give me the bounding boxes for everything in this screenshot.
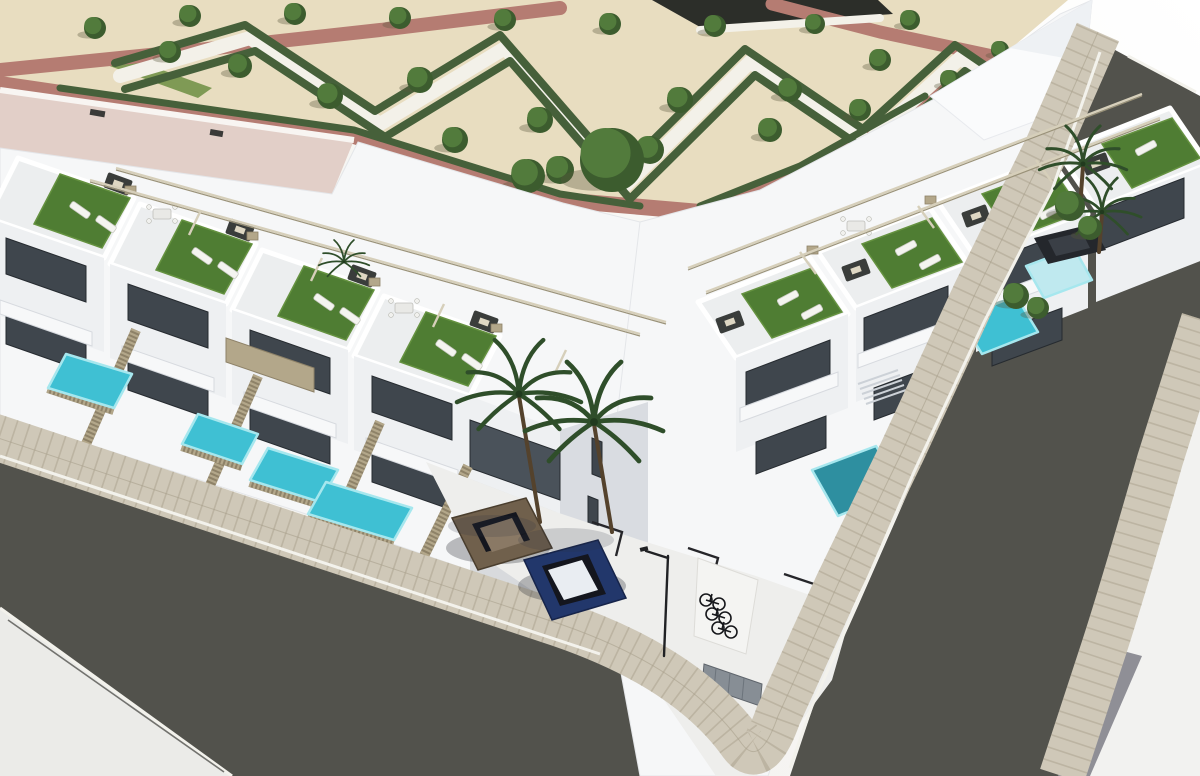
architectural-render: Aerial 3D rendering of a modern white re…	[0, 0, 1200, 776]
render-canvas	[0, 0, 1200, 776]
